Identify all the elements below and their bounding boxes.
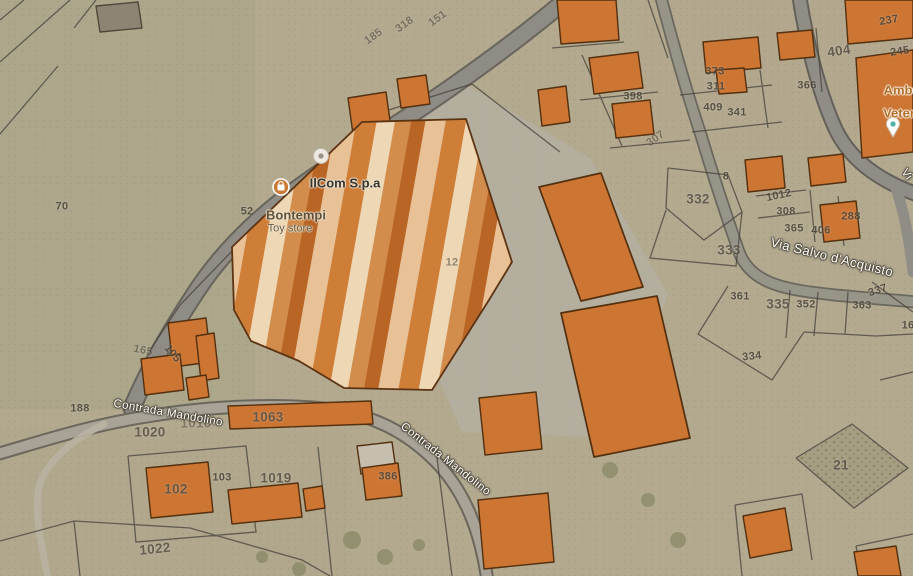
satellite-map (0, 0, 913, 576)
building-386 (362, 463, 402, 500)
building (96, 2, 142, 32)
building (479, 392, 542, 455)
building (141, 354, 184, 395)
building (745, 156, 785, 192)
building (303, 486, 325, 511)
generic-place-pin-icon[interactable] (314, 149, 329, 164)
building (716, 68, 747, 94)
building (557, 0, 619, 44)
building (228, 483, 302, 524)
strip-building-1063 (228, 401, 373, 429)
building (845, 0, 913, 44)
building (538, 86, 570, 126)
building (589, 52, 643, 94)
building (612, 100, 654, 138)
building (186, 375, 209, 400)
map-canvas[interactable]: 7052185318151105165188102010101063102103… (0, 0, 913, 576)
building-102 (146, 462, 213, 518)
veterinary-building (856, 50, 913, 158)
building (703, 37, 761, 73)
building (854, 546, 901, 576)
building (808, 154, 846, 186)
building (397, 75, 430, 108)
building (743, 508, 792, 558)
building (820, 201, 860, 242)
shopping-bag-pin-icon[interactable] (273, 179, 289, 195)
building (478, 493, 554, 569)
building (777, 30, 815, 60)
map-screenshot: { "map": { "poi_labels": [ {"id":"ilcom"… (0, 0, 913, 576)
